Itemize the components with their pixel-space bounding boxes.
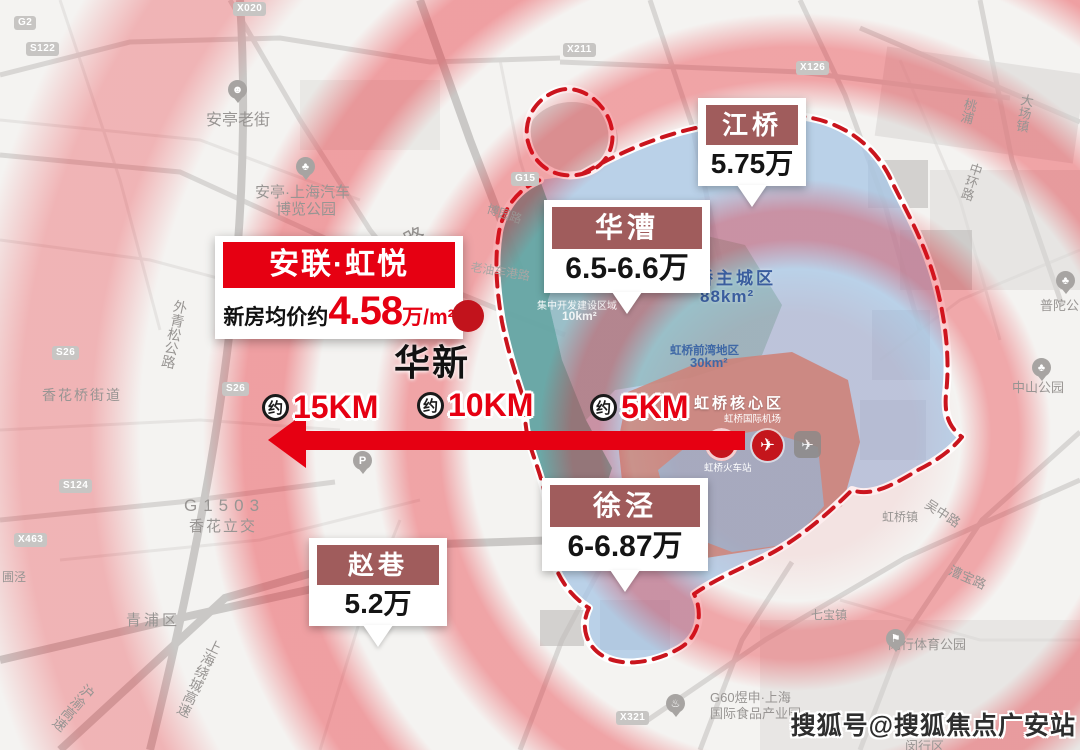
parking-icon: P bbox=[353, 451, 372, 470]
project-location-dot bbox=[452, 300, 484, 332]
place-label: 安亭老街 bbox=[206, 106, 270, 130]
project-callout: 安联·虹悦 新房均价约 4.58 万/m² bbox=[215, 236, 463, 339]
road-badge: S122 bbox=[26, 42, 59, 56]
distance-marker-15km: 约 15KM bbox=[262, 389, 378, 426]
callout-pointer bbox=[363, 625, 393, 647]
distance-arrow bbox=[302, 431, 745, 450]
district-label: 青浦区 bbox=[126, 609, 180, 630]
callout-pointer bbox=[612, 292, 642, 314]
area-price: 6.5-6.6万 bbox=[552, 253, 702, 285]
road-badge: G2 bbox=[14, 16, 36, 30]
road-badge: X463 bbox=[14, 533, 47, 547]
airplane-map-icon: ✈ bbox=[794, 431, 821, 458]
callout-xujing: 徐泾 6-6.87万 bbox=[542, 478, 708, 571]
place-label: 圃泾 bbox=[2, 568, 26, 585]
poi-park-icon: ♣ bbox=[1032, 358, 1051, 377]
area-name: 赵巷 bbox=[317, 545, 439, 585]
road-badge: S26 bbox=[52, 346, 79, 360]
place-label: 香花立交 bbox=[189, 515, 257, 536]
area-name: 徐泾 bbox=[550, 485, 700, 527]
road-badge: X211 bbox=[563, 43, 596, 57]
approx-badge: 约 bbox=[590, 394, 617, 421]
callout-pointer bbox=[610, 570, 640, 592]
place-label: 七宝镇 bbox=[811, 606, 847, 623]
highways bbox=[0, 0, 560, 750]
road-badge: X321 bbox=[616, 711, 649, 725]
distance-value: 15KM bbox=[293, 389, 378, 426]
front-bay-area-label: 30km² bbox=[690, 355, 728, 370]
distance-marker-10km: 约 10KM bbox=[417, 387, 533, 424]
approx-badge: 约 bbox=[417, 392, 444, 419]
place-label: 博览公园 bbox=[276, 198, 336, 219]
price-prefix: 新房均价约 bbox=[223, 301, 328, 331]
project-price: 新房均价约 4.58 万/m² bbox=[223, 293, 455, 331]
project-name: 安联·虹悦 bbox=[223, 242, 455, 288]
poi-industry-icon: ♨ bbox=[666, 694, 685, 713]
callout-pointer bbox=[737, 185, 767, 207]
place-label: 国际食品产业园 bbox=[710, 703, 801, 722]
callout-zhaoxiang: 赵巷 5.2万 bbox=[309, 538, 447, 626]
place-label: 香花桥街道 bbox=[42, 385, 122, 405]
distance-marker-5km: 约 5KM bbox=[590, 389, 689, 426]
dev-zone-area-label: 10km² bbox=[562, 309, 597, 323]
area-price: 6-6.87万 bbox=[550, 531, 700, 563]
price-unit: 万/m² bbox=[402, 301, 455, 331]
road-badge: S26 bbox=[222, 382, 249, 396]
core-region-label: 虹桥核心区 bbox=[694, 392, 784, 413]
price-value: 4.58 bbox=[328, 293, 402, 329]
road-badge: G15 bbox=[511, 172, 539, 186]
place-label: 虹桥镇 bbox=[882, 508, 918, 525]
distance-value: 10KM bbox=[448, 387, 533, 424]
area-price: 5.75万 bbox=[706, 149, 798, 178]
watermark: 搜狐号@搜狐焦点广安站 bbox=[791, 706, 1076, 742]
road-badge: S124 bbox=[59, 479, 92, 493]
area-name: 华漕 bbox=[552, 207, 702, 249]
poi-park-icon: ♣ bbox=[1056, 271, 1075, 290]
poi-sports-icon: ⚑ bbox=[886, 629, 905, 648]
poi-park-icon: ♣ bbox=[296, 157, 315, 176]
poi-person-icon: ☻ bbox=[228, 80, 247, 99]
airport-icon: ✈ bbox=[752, 430, 783, 461]
airport-label: 虹桥国际机场 bbox=[724, 411, 781, 425]
real-estate-map: ✈ ✈ 虹桥主城区 88km² 虹桥前湾地区 30km² 集中开发建设区域 10… bbox=[0, 0, 1080, 750]
area-price: 5.2万 bbox=[317, 589, 439, 618]
railway-station-label: 虹桥火车站 bbox=[704, 460, 752, 474]
town-label: 华新 bbox=[394, 334, 470, 386]
distance-value: 5KM bbox=[621, 389, 689, 426]
callout-huacao: 华漕 6.5-6.6万 bbox=[544, 200, 710, 293]
callout-jiangqiao: 江桥 5.75万 bbox=[698, 98, 806, 186]
approx-badge: 约 bbox=[262, 394, 289, 421]
road-badge: X126 bbox=[796, 61, 829, 75]
place-label: 普陀公园 bbox=[1040, 295, 1080, 314]
road-badge: X020 bbox=[233, 2, 266, 16]
road-label: G1503 bbox=[184, 496, 265, 516]
area-name: 江桥 bbox=[706, 105, 798, 145]
